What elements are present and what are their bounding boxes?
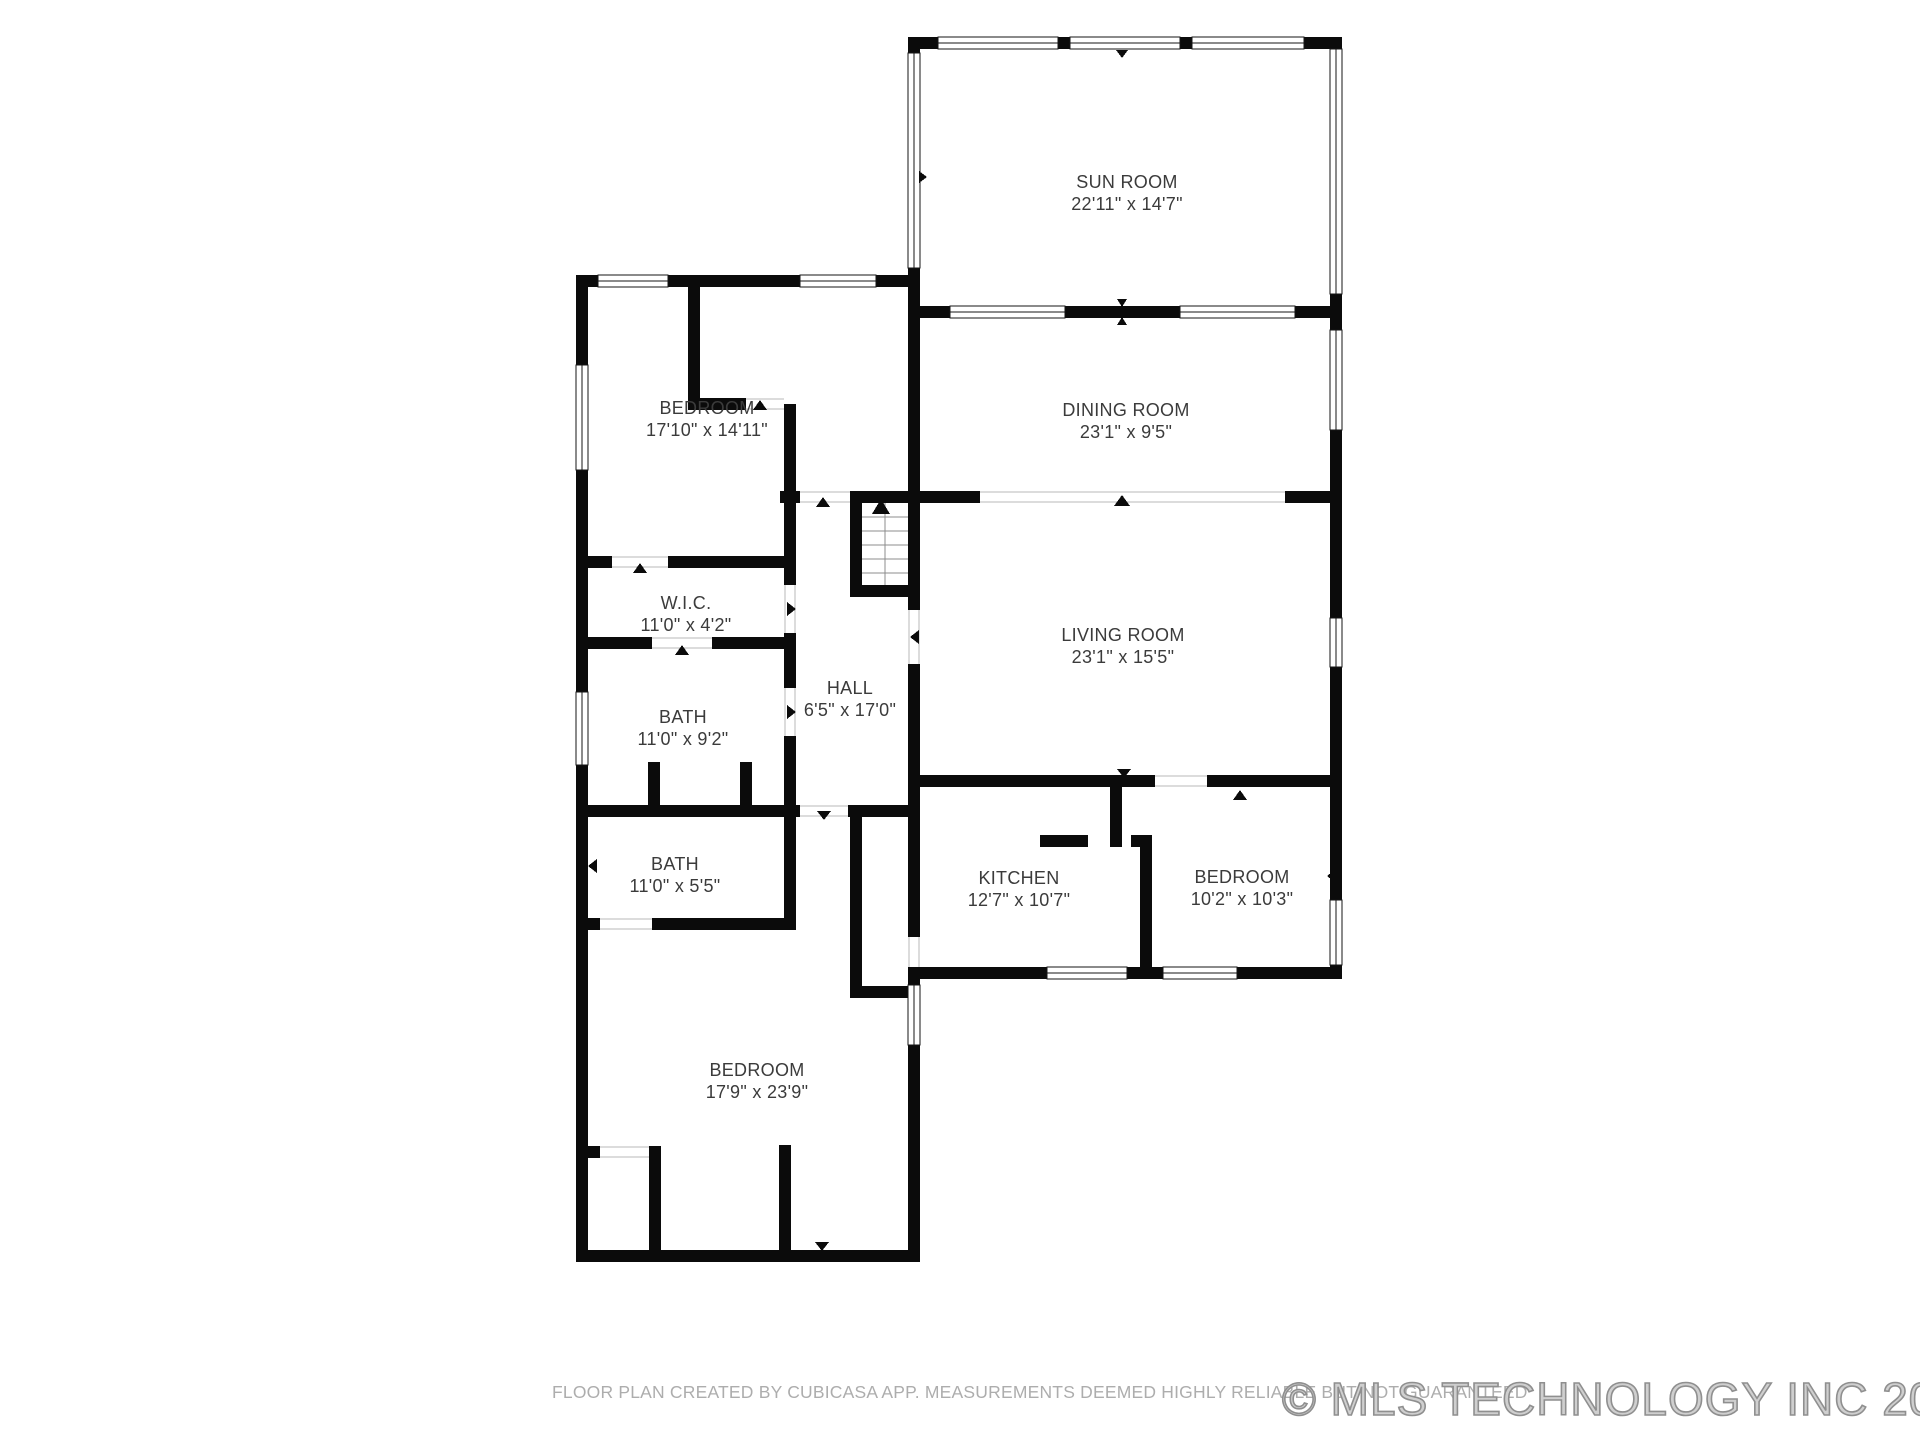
wall (1127, 967, 1163, 979)
room-label-wic: W.I.C. 11'0" x 4'2" (641, 592, 732, 636)
room-name: BEDROOM (1191, 866, 1294, 888)
wall (1237, 967, 1342, 979)
wall (1207, 775, 1330, 787)
room-dims: 23'1" x 9'5" (1062, 421, 1189, 443)
room-label-bedroom-right: BEDROOM 10'2" x 10'3" (1191, 866, 1294, 910)
room-name: BATH (638, 706, 729, 728)
room-name: BEDROOM (646, 397, 768, 419)
room-dims: 11'0" x 9'2" (638, 728, 729, 750)
room-dims: 23'1" x 15'5" (1061, 646, 1184, 668)
room-label-bedroom-upper: BEDROOM 17'10" x 14'11" (646, 397, 768, 441)
wall (848, 805, 920, 817)
wall (576, 556, 612, 568)
wall (850, 491, 862, 597)
wall (648, 762, 660, 805)
door-marker (910, 630, 919, 644)
wall (908, 664, 920, 805)
wall (576, 470, 588, 692)
room-name: HALL (804, 677, 896, 699)
room-name: KITCHEN (968, 867, 1071, 889)
wall (688, 287, 700, 404)
door-marker (1233, 790, 1247, 800)
wall (908, 306, 920, 491)
watermark: © MLS TECHNOLOGY INC 2026 (1282, 1372, 1920, 1426)
door-marker (1117, 299, 1127, 307)
wall (576, 805, 800, 817)
wall (908, 37, 938, 49)
room-label-kitchen: KITCHEN 12'7" x 10'7" (968, 867, 1071, 911)
room-dims: 12'7" x 10'7" (968, 889, 1071, 911)
wall (1065, 306, 1180, 318)
floor-plan-drawing (0, 0, 1920, 1440)
door-marker (1116, 50, 1128, 58)
room-name: BATH (630, 853, 721, 875)
door-marker (633, 563, 647, 573)
room-name: W.I.C. (641, 592, 732, 614)
room-label-living-room: LIVING ROOM 23'1" x 15'5" (1061, 624, 1184, 668)
wall (740, 762, 752, 805)
floor-plan-page: { "rooms": [ {"id": "sun-room", "name": … (0, 0, 1920, 1440)
door-marker (1114, 495, 1130, 506)
wall (1140, 835, 1152, 967)
room-dims: 11'0" x 5'5" (630, 875, 721, 897)
wall (576, 1250, 920, 1262)
room-dims: 6'5" x 17'0" (804, 699, 896, 721)
wall (576, 637, 652, 649)
wall (908, 1045, 920, 1262)
wall (1180, 37, 1192, 49)
door-marker (919, 171, 927, 183)
room-dims: 11'0" x 4'2" (641, 614, 732, 636)
wall (1040, 835, 1088, 847)
room-dims: 22'11" x 14'7" (1071, 193, 1183, 215)
wall (908, 967, 1047, 979)
door-marker (675, 645, 689, 655)
staircase (862, 499, 908, 585)
wall (850, 585, 920, 597)
wall (1110, 787, 1122, 847)
room-name: LIVING ROOM (1061, 624, 1184, 646)
room-dims: 10'2" x 10'3" (1191, 888, 1294, 910)
room-name: BEDROOM (706, 1059, 809, 1081)
wall (1330, 430, 1342, 497)
room-label-bedroom-lower: BEDROOM 17'9" x 23'9" (706, 1059, 809, 1103)
wall (1330, 667, 1342, 900)
room-dims: 17'9" x 23'9" (706, 1081, 809, 1103)
wall (850, 817, 862, 992)
room-name: SUN ROOM (1071, 171, 1183, 193)
room-label-hall: HALL 6'5" x 17'0" (804, 677, 896, 721)
wall (1304, 37, 1342, 49)
door-marker (1117, 317, 1127, 325)
door-markers (588, 50, 1336, 1251)
wall (576, 918, 600, 930)
wall (712, 637, 796, 649)
room-label-sun-room: SUN ROOM 22'11" x 14'7" (1071, 171, 1183, 215)
room-label-bath-lower: BATH 11'0" x 5'5" (630, 853, 721, 897)
wall (920, 775, 1155, 787)
wall (1058, 37, 1070, 49)
door-marker (588, 859, 597, 873)
wall (668, 556, 796, 568)
wall (1285, 491, 1342, 503)
room-label-dining-room: DINING ROOM 23'1" x 9'5" (1062, 399, 1189, 443)
room-name: DINING ROOM (1062, 399, 1189, 421)
wall (649, 1146, 661, 1262)
wall (668, 275, 800, 287)
wall (583, 1146, 600, 1158)
wall (779, 1145, 791, 1262)
room-label-bath-upper: BATH 11'0" x 9'2" (638, 706, 729, 750)
door-marker (815, 1242, 829, 1251)
wall (1330, 497, 1342, 618)
wall (908, 805, 920, 937)
wall (576, 275, 588, 365)
wall (652, 918, 796, 930)
wall (920, 491, 980, 503)
room-dims: 17'10" x 14'11" (646, 419, 768, 441)
wall (784, 736, 796, 930)
wall (1295, 306, 1342, 318)
walls (576, 37, 1342, 1262)
wall (576, 765, 588, 1262)
